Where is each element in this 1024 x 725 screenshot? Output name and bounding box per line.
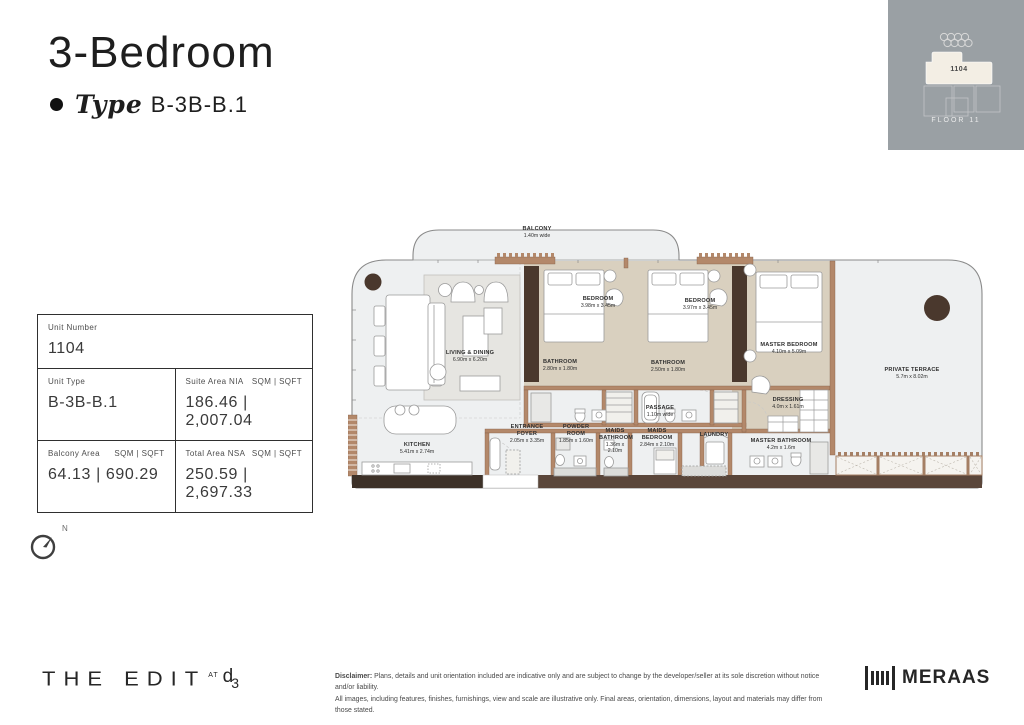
balcony-area-value: 64.13 | 690.29 (48, 466, 165, 484)
table-row: Balcony Area SQM | SQFT 64.13 | 690.29 T… (38, 440, 312, 512)
brand-at-label: AT (208, 672, 218, 679)
floor-plan: BALCONY1.40m wide LIVING & DINING6.90m x… (348, 210, 1008, 502)
keyplan-card: 1104 FLOOR 11 (888, 0, 1024, 150)
page-title: 3-Bedroom (48, 28, 275, 78)
suite-area-value: 186.46 | 2,007.04 (186, 394, 303, 430)
floor-plan-page: 3-Bedroom Type B-3B-B.1 1104 (0, 0, 1024, 725)
unit-number-label: Unit Number (48, 323, 97, 332)
compass-north-label: N (62, 524, 68, 533)
meraas-icon (864, 665, 896, 691)
keyplan-floor-label: FLOOR 11 (888, 117, 1024, 124)
unit-number-value: 1104 (48, 340, 302, 358)
keyplan-other-units (924, 86, 1000, 116)
floor-plan-svg (348, 210, 1008, 502)
total-area-units: SQM | SQFT (252, 449, 302, 458)
disclaimer-text: Disclaimer: Plans, details and unit orie… (335, 671, 825, 717)
disclaimer-line1: Plans, details and unit orientation incl… (335, 673, 819, 691)
keyplan-unit-number: 1104 (928, 66, 990, 73)
disclaimer-label: Disclaimer: (335, 673, 372, 680)
type-label: Type (75, 90, 143, 119)
meraas-wordmark: MERAAS (902, 667, 990, 689)
the-edit-logo: THE EDIT AT d3 (42, 666, 241, 692)
d3-logo: d3 (223, 666, 241, 688)
balcony-area-units: SQM | SQFT (114, 449, 164, 458)
bullet-icon (50, 98, 63, 111)
entrance-threshold (483, 475, 538, 488)
rings-icon (940, 33, 972, 46)
meraas-logo: MERAAS (864, 665, 990, 691)
suite-area-cell: Suite Area NIA SQM | SQFT 186.46 | 2,007… (175, 369, 313, 440)
unit-type-value: B-3B-B.1 (48, 394, 165, 412)
suite-area-units: SQM | SQFT (252, 377, 302, 386)
unit-number-cell: Unit Number 1104 (38, 315, 312, 368)
type-value: B-3B-B.1 (151, 92, 248, 118)
disclaimer-line2: All images, including features, finishes… (335, 696, 822, 714)
total-area-label: Total Area NSA (186, 449, 246, 458)
total-area-cell: Total Area NSA SQM | SQFT 250.59 | 2,697… (175, 441, 313, 512)
bottom-wall-right (538, 475, 982, 488)
bottom-wall-left (352, 475, 483, 488)
table-row: Unit Number 1104 (38, 315, 312, 368)
balcony-area-label: Balcony Area (48, 449, 100, 458)
unit-type-row: Type B-3B-B.1 (50, 90, 248, 119)
total-area-value: 250.59 | 2,697.33 (186, 466, 303, 502)
suite-area-label: Suite Area NIA (186, 377, 244, 386)
unit-info-table: Unit Number 1104 Unit Type B-3B-B.1 Suit… (37, 314, 313, 513)
compass: N (26, 524, 72, 570)
keyplan-graphic (888, 0, 1024, 150)
unit-type-label: Unit Type (48, 377, 85, 386)
balcony-area-cell: Balcony Area SQM | SQFT 64.13 | 690.29 (38, 441, 175, 512)
table-row: Unit Type B-3B-B.1 Suite Area NIA SQM | … (38, 368, 312, 440)
unit-type-cell: Unit Type B-3B-B.1 (38, 369, 175, 440)
the-edit-wordmark: THE EDIT (42, 667, 206, 691)
